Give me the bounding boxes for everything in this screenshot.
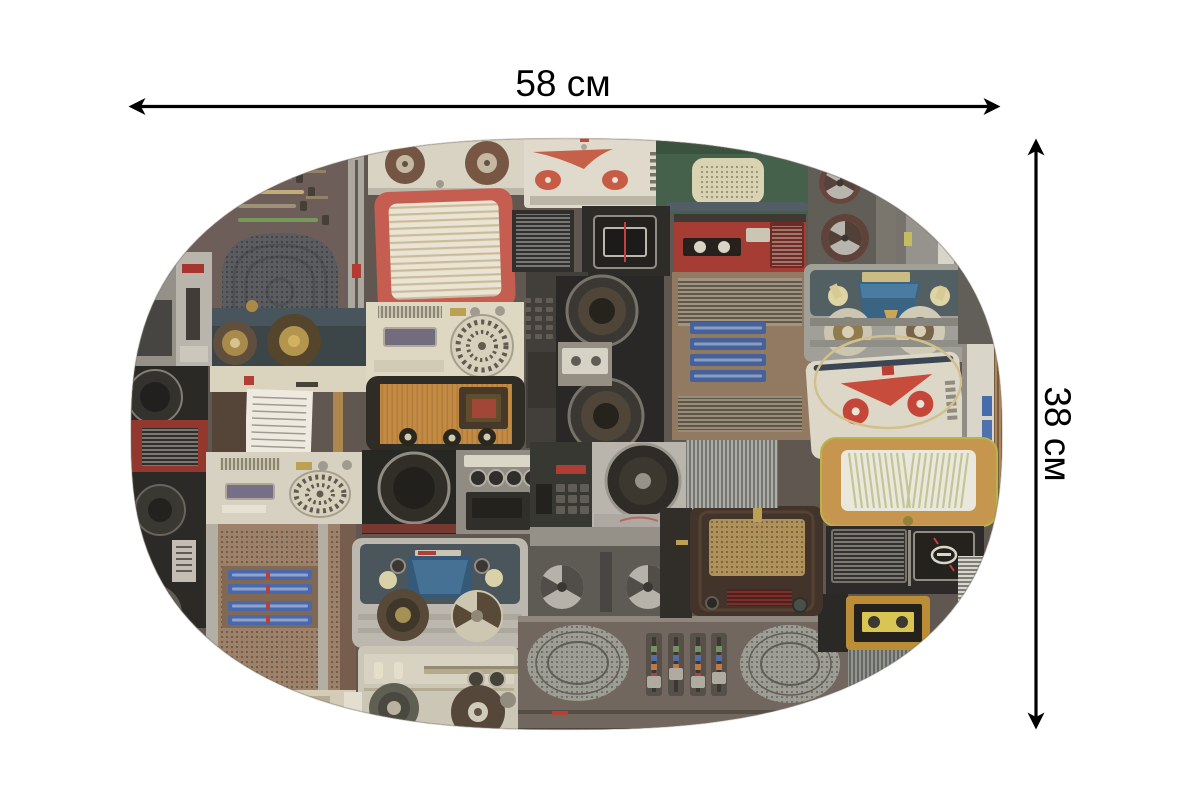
svg-text:38 см: 38 см — [1037, 386, 1078, 481]
svg-text:58 см: 58 см — [515, 63, 610, 104]
